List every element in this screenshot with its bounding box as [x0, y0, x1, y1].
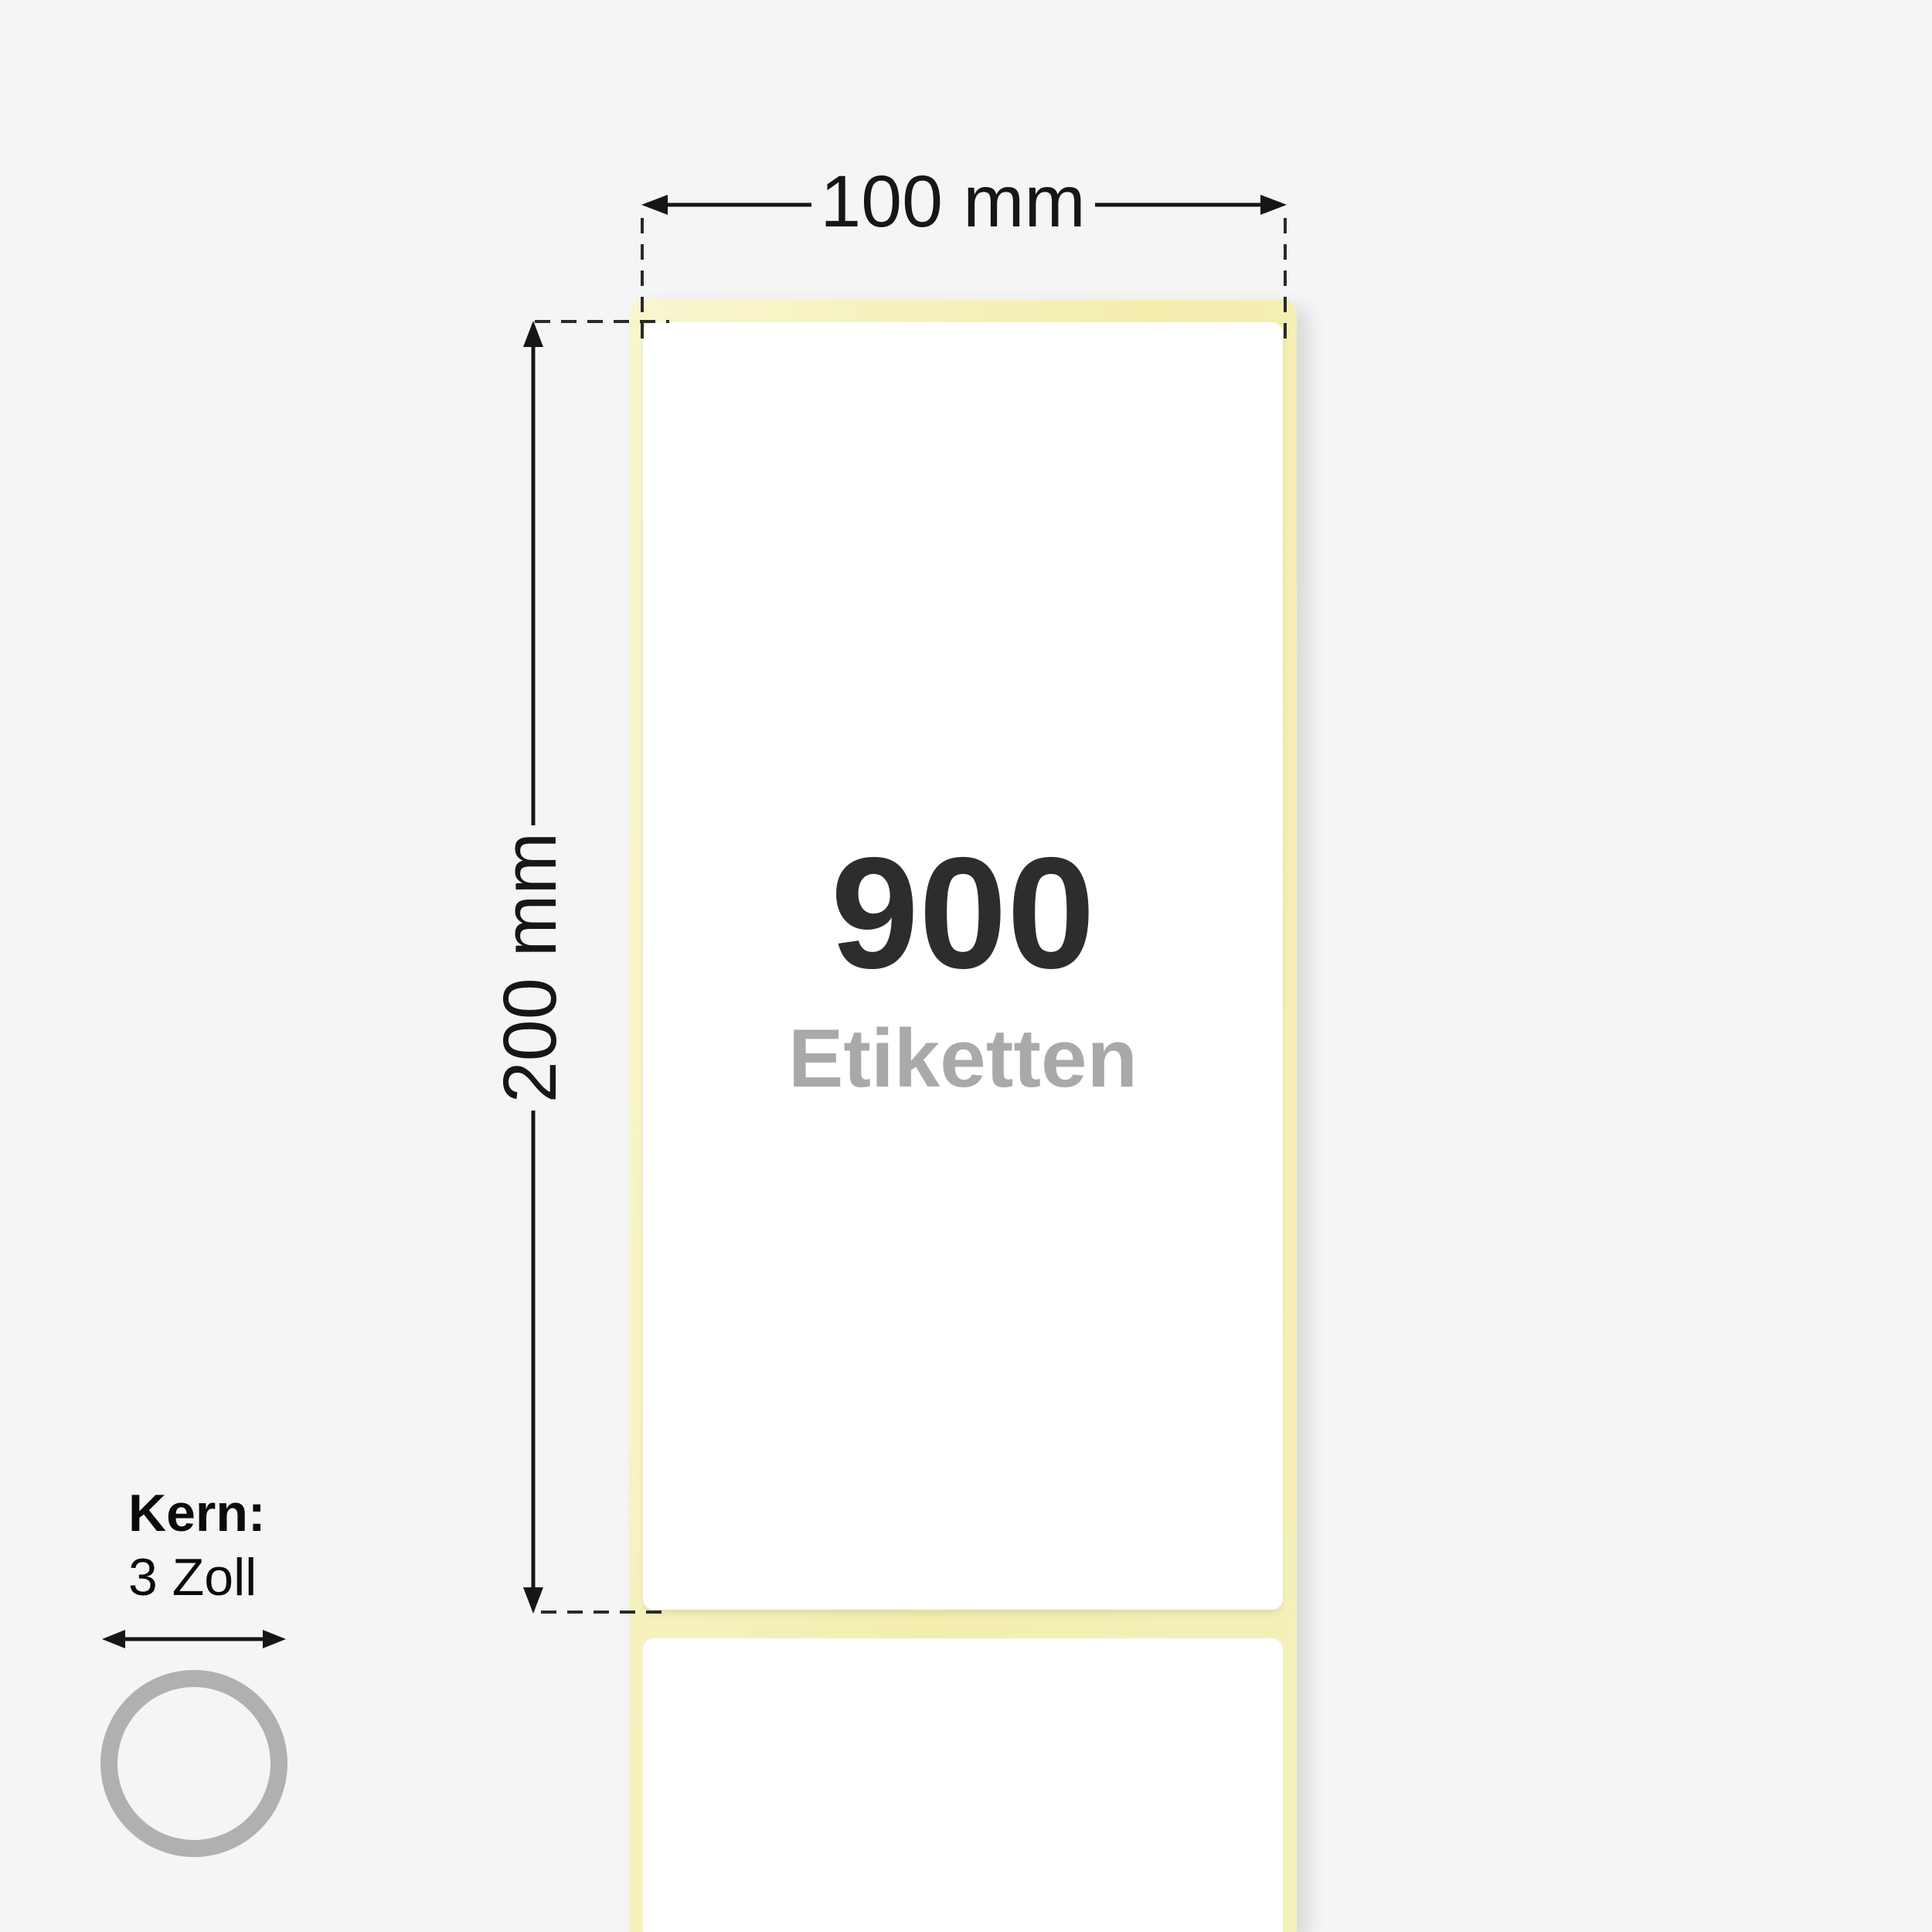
height-arrow-top-head [523, 321, 543, 347]
width-arrow-left-head [641, 195, 668, 215]
height-arrow-bottom-head [523, 1587, 543, 1614]
label-count: 900 [643, 828, 1283, 998]
core-arrow-right-head [263, 1630, 286, 1648]
label-count-unit: Etiketten [643, 1007, 1283, 1110]
core-arrow-left-head [102, 1630, 125, 1648]
width-arrow-right-head [1260, 195, 1287, 215]
core-diameter-group [102, 1630, 286, 1849]
core-label: Kern: [128, 1481, 266, 1546]
label-roll-diagram: 900 Etiketten 100 mm 200 mm Kern: 3 Zoll [0, 0, 1932, 1932]
label-core-ring-icon [109, 1679, 279, 1849]
height-dimension-value: 200 mm [487, 832, 573, 1103]
width-dimension-value: 100 mm [798, 165, 1107, 240]
core-info: Kern: 3 Zoll [128, 1481, 266, 1610]
core-size-value: 3 Zoll [128, 1546, 266, 1610]
